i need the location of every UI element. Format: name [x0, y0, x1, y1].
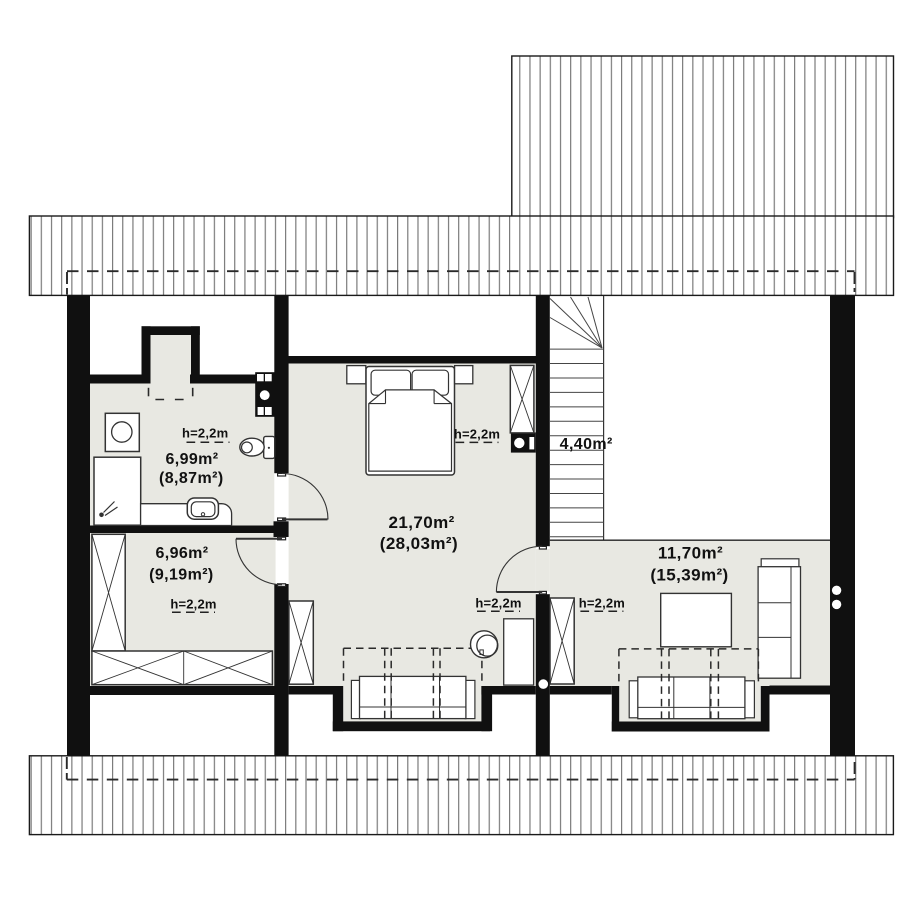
- svg-text:h=2,2m: h=2,2m: [182, 425, 228, 440]
- svg-text:4,40m²: 4,40m²: [560, 436, 613, 453]
- svg-text:(15,39m²): (15,39m²): [650, 566, 728, 585]
- svg-text:11,70m²: 11,70m²: [658, 544, 723, 563]
- svg-text:(9,19m²): (9,19m²): [149, 566, 214, 583]
- svg-text:h=2,2m: h=2,2m: [170, 597, 216, 612]
- svg-text:6,96m²: 6,96m²: [155, 545, 208, 562]
- svg-text:(8,87m²): (8,87m²): [159, 470, 224, 487]
- svg-text:h=2,2m: h=2,2m: [475, 596, 521, 611]
- svg-text:6,99m²: 6,99m²: [165, 451, 218, 468]
- svg-text:(28,03m²): (28,03m²): [380, 534, 458, 553]
- svg-text:21,70m²: 21,70m²: [389, 513, 455, 532]
- svg-text:h=2,2m: h=2,2m: [579, 596, 625, 611]
- svg-text:h=2,2m: h=2,2m: [454, 427, 500, 442]
